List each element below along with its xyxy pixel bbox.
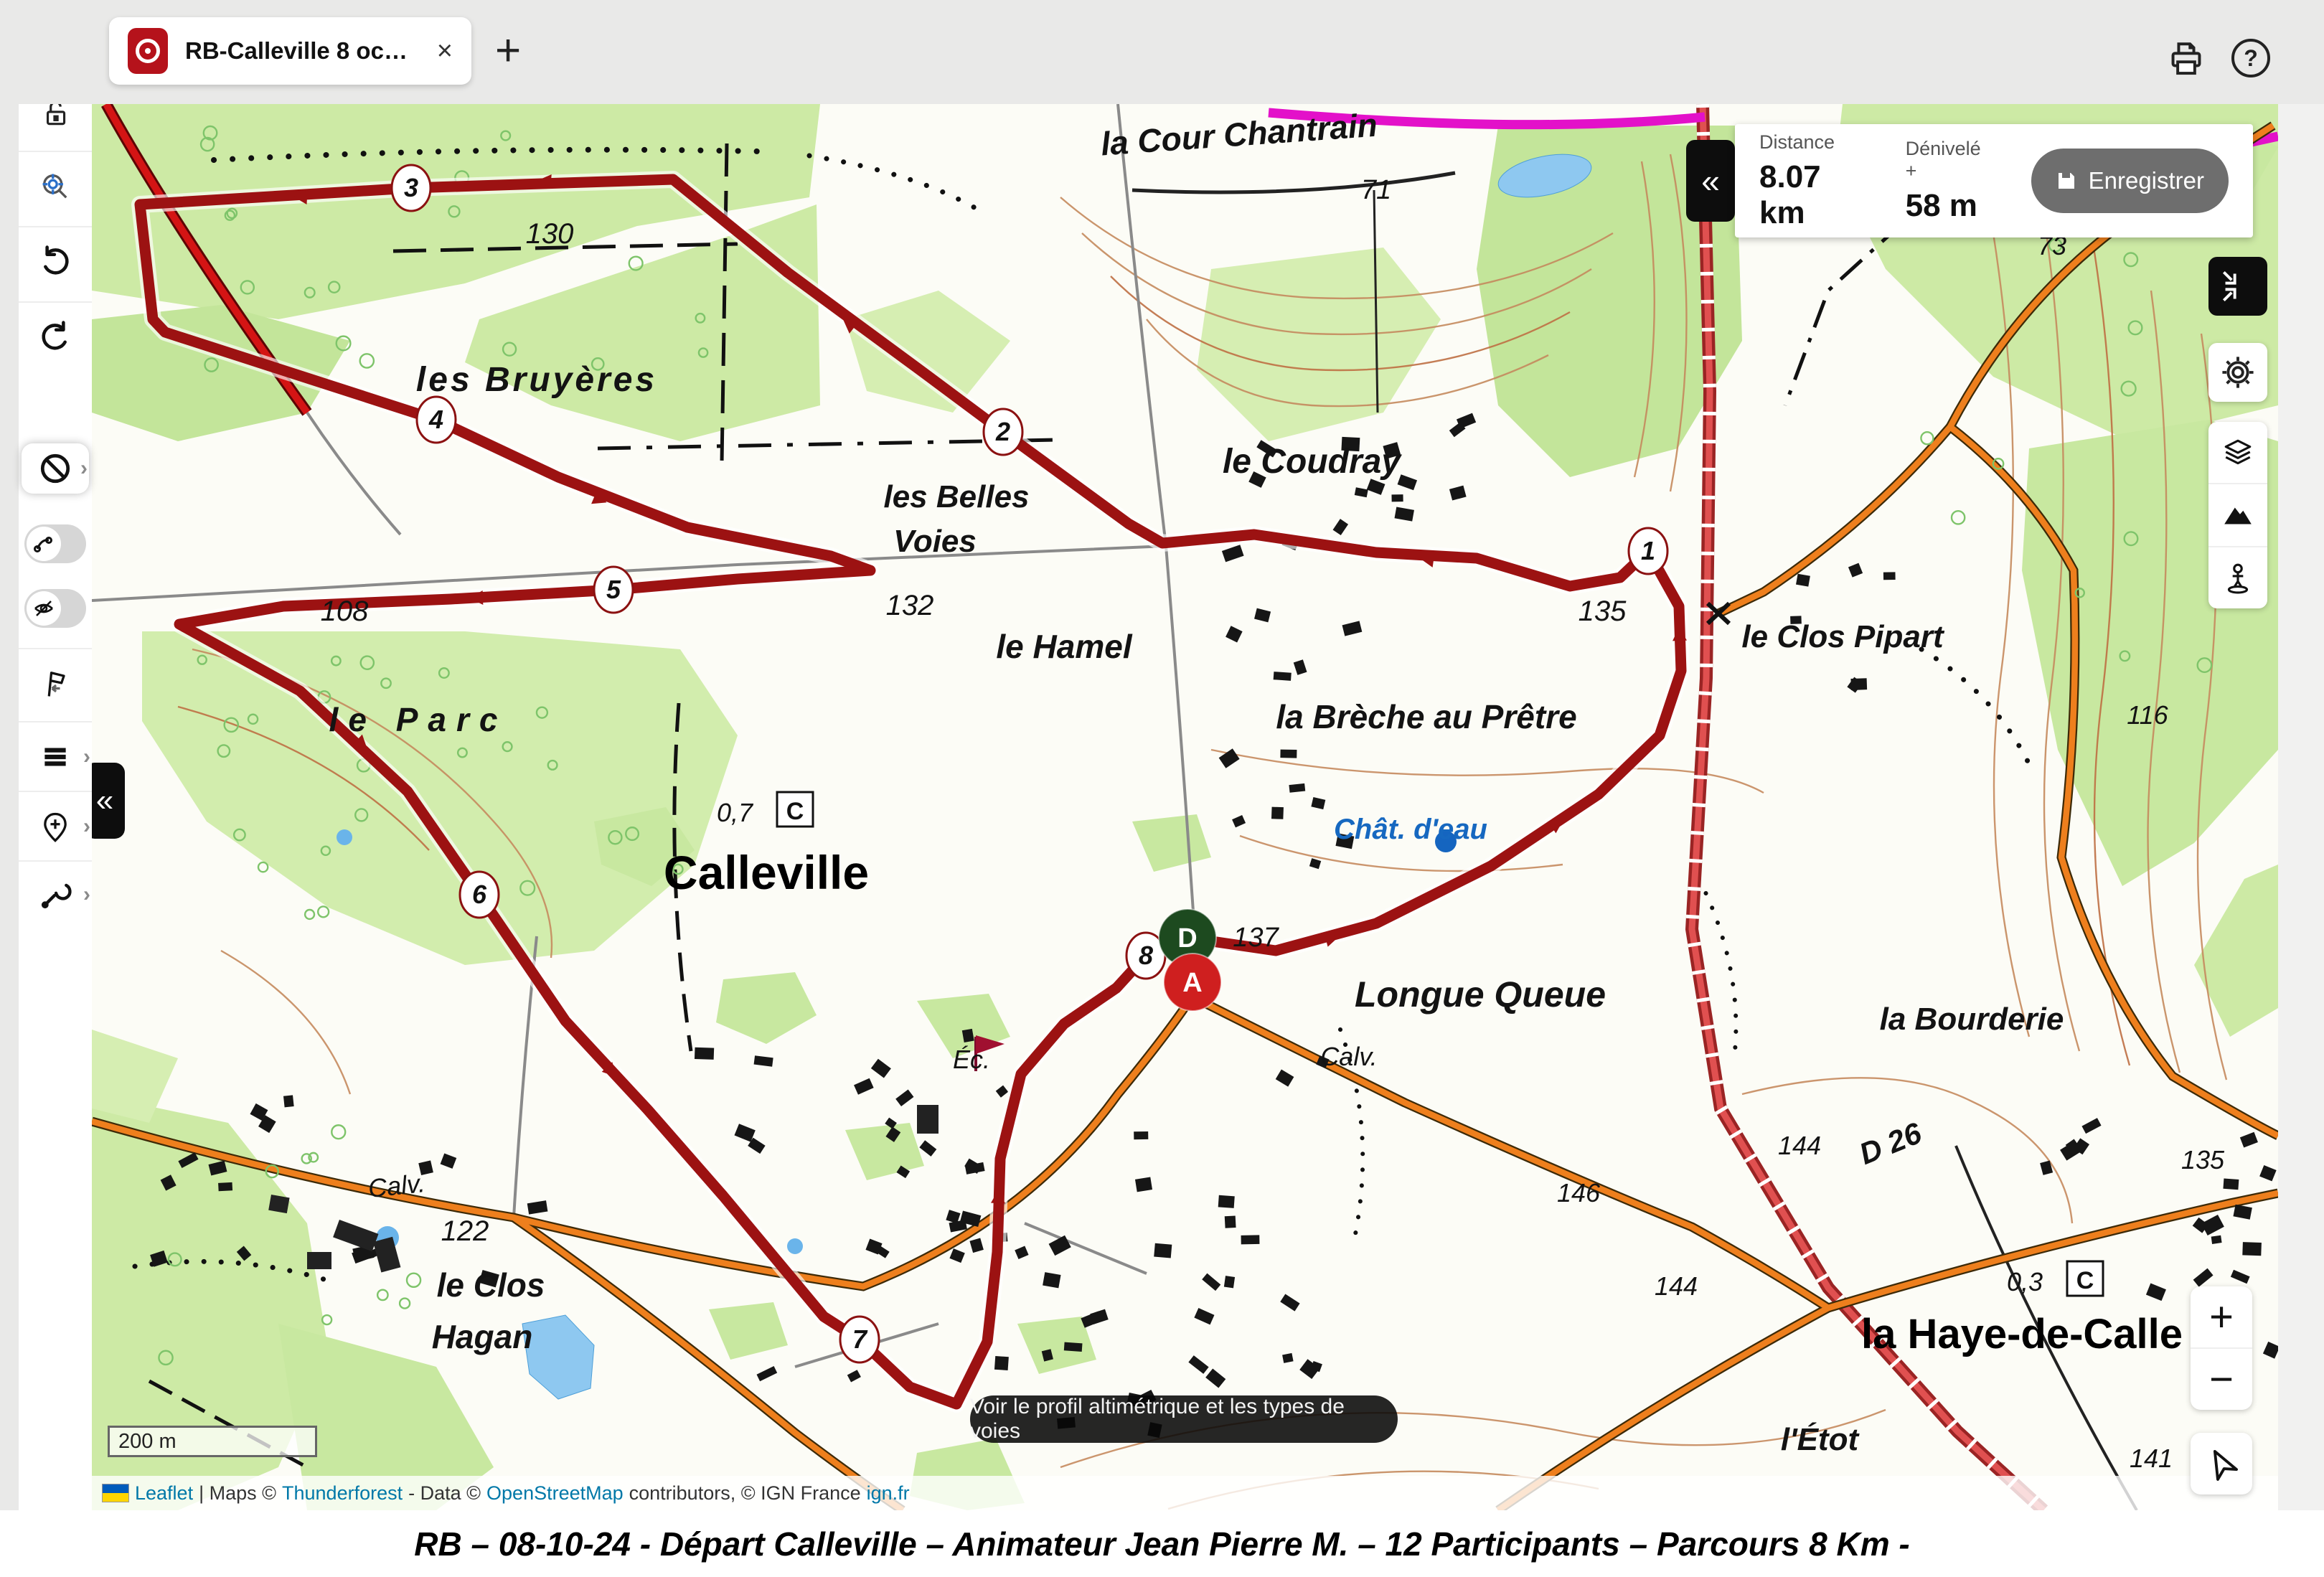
exit-fullscreen-button[interactable] [2208, 257, 2267, 316]
map-tools-stack [2208, 422, 2267, 608]
prohibition-icon [37, 450, 74, 487]
wrench-icon [38, 877, 72, 912]
leaflet-link[interactable]: Leaflet [135, 1482, 193, 1505]
map-label: 132 [886, 590, 934, 621]
ign-link[interactable]: ign.fr [867, 1482, 910, 1505]
map-label: 71 [1361, 175, 1391, 205]
chevron-right-icon: › [83, 745, 90, 769]
map-canvas[interactable]: la Cour Chantrain71130les Bruyèresle Cou… [92, 104, 2278, 1510]
map-label: le Coudray [1223, 443, 1402, 481]
redo-button[interactable] [19, 312, 92, 362]
app-eye-icon [128, 28, 168, 74]
svg-text:2: 2 [995, 417, 1010, 446]
svg-text:1: 1 [1641, 536, 1655, 565]
map-label: la Bourderie [1880, 1002, 2064, 1037]
map-label: 137 [1233, 923, 1279, 953]
map-label: Éc. [953, 1045, 990, 1074]
chevron-right-icon: › [80, 456, 88, 481]
map-label: Calv. [1320, 1042, 1377, 1071]
map-label: Hagan [432, 1318, 533, 1355]
attribution-text: contributors, © IGN France [629, 1482, 861, 1505]
map-label: 0,3 [2007, 1267, 2043, 1296]
eye-slash-icon [27, 591, 61, 626]
settings-button[interactable] [2208, 343, 2267, 402]
map-label: Voies [893, 524, 977, 559]
map-attribution: Leaflet | Maps © Thunderforest - Data © … [92, 1476, 2278, 1510]
sidebar-separator [19, 226, 92, 227]
layers-icon [2221, 436, 2254, 469]
svg-text:3: 3 [404, 173, 418, 202]
zoom-target-icon [38, 169, 72, 204]
chevron-right-icon: › [83, 882, 90, 907]
help-button[interactable]: ? [2231, 39, 2270, 77]
sidebar-separator [19, 860, 92, 862]
svg-text:A: A [1182, 968, 1202, 998]
new-tab-button[interactable]: + [495, 29, 521, 73]
hamburger-icon [39, 740, 72, 773]
waypoint-marker[interactable]: 4 [417, 397, 456, 443]
waypoint-marker[interactable]: 1 [1629, 528, 1667, 574]
map-label: la Haye-de-Calle [1861, 1311, 2183, 1357]
tab-title: RB-Calleville 8 oc… [185, 37, 408, 65]
printer-icon [2165, 37, 2207, 79]
map-label: le Clos [437, 1266, 545, 1304]
map-label: C [786, 798, 804, 825]
toggle-pill [24, 589, 86, 628]
top-bar: RB-Calleville 8 oc… × + ? [0, 0, 2324, 104]
osm-link[interactable]: OpenStreetMap [486, 1482, 624, 1505]
zoom-in-button[interactable]: + [2191, 1286, 2252, 1349]
route-info-panel: Distance 8.07 km Dénivelé + 58 m Enregis… [1735, 124, 2253, 237]
print-button[interactable] [2165, 37, 2207, 79]
mountain-icon [2221, 499, 2254, 532]
distance-metric: Distance 8.07 km [1759, 131, 1860, 231]
sidebar-separator [19, 791, 92, 792]
relief-button[interactable] [2208, 484, 2267, 547]
map-label: 0,7 [717, 798, 754, 827]
map-label: les Bruyères [416, 361, 657, 399]
sidebar-separator [19, 721, 92, 722]
locate-button[interactable] [2191, 1433, 2252, 1494]
route-icon [27, 527, 61, 561]
map-label: les Belles [883, 479, 1029, 514]
tool-sidebar: › › › › [19, 43, 92, 1510]
zoom-out-button[interactable]: − [2191, 1349, 2252, 1410]
flag-icon [38, 667, 72, 701]
thunderforest-link[interactable]: Thunderforest [282, 1482, 403, 1505]
waypoint-marker[interactable]: 6 [460, 872, 499, 918]
tooltip-text: Voir le profil altimétrique et les types… [970, 1395, 1398, 1444]
attribution-text: | Maps © [199, 1482, 276, 1505]
outing-caption: RB – 08-10-24 - Départ Calleville – Anim… [0, 1510, 2324, 1577]
map-label: Longue Queue [1355, 974, 1606, 1015]
save-button[interactable]: Enregistrer [2031, 149, 2229, 213]
map-label: le Clos Pipart [1741, 619, 1945, 654]
sidebar-separator [19, 648, 92, 649]
no-edit-tool-button[interactable]: › [22, 443, 89, 494]
waypoint-marker[interactable]: 3 [392, 165, 431, 211]
add-marker-button[interactable]: › [19, 801, 92, 852]
map-label: 144 [1655, 1271, 1698, 1301]
sidebar-separator [19, 301, 92, 303]
elevation-metric: Dénivelé + 58 m [1906, 138, 1985, 224]
map-label: la Brèche au Prêtre [1276, 698, 1576, 735]
ukraine-flag-icon [102, 1484, 129, 1502]
map-label: 144 [1778, 1131, 1821, 1160]
finish-marker[interactable]: A [1164, 954, 1221, 1011]
panel-collapse-button[interactable]: « [1686, 140, 1735, 222]
sidebar-separator [19, 151, 92, 152]
map-label: le Parc [329, 701, 508, 738]
map-label: D 26 [1855, 1116, 1927, 1171]
distance-value: 8.07 km [1759, 159, 1860, 231]
map-label: 135 [1579, 596, 1627, 627]
document-tab[interactable]: RB-Calleville 8 oc… × [109, 17, 471, 85]
undo-button[interactable] [19, 237, 92, 287]
chevron-right-icon: › [83, 814, 90, 839]
waypoint-marker[interactable]: 5 [594, 567, 633, 613]
map-label: Calleville [664, 846, 869, 899]
waypoint-flag-button[interactable] [19, 659, 92, 709]
hide-layers-toggle[interactable] [19, 583, 92, 634]
scale-bar: 200 m [108, 1426, 317, 1457]
chevrons-left-icon: « [96, 783, 113, 819]
right-gutter [2278, 0, 2324, 1510]
close-tab-icon[interactable]: × [437, 37, 453, 65]
svg-text:4: 4 [428, 405, 443, 434]
map-label: 108 [321, 596, 369, 627]
map-label: 116 [2127, 700, 2168, 730]
map-label: 141 [2130, 1444, 2173, 1473]
map-label: C [2076, 1267, 2094, 1294]
map-label: la Cour Chantrain [1100, 106, 1379, 163]
waypoint-marker[interactable]: 7 [840, 1317, 879, 1362]
menu-button[interactable]: › [19, 732, 92, 782]
map-label: l'Étot [1781, 1421, 1860, 1457]
layers-button[interactable] [2208, 422, 2267, 484]
undo-icon [37, 244, 73, 280]
map-label: le Hamel [996, 628, 1132, 665]
profile-tooltip: Voir le profil altimétrique et les types… [970, 1395, 1398, 1443]
pin-plus-icon [38, 809, 72, 844]
map-label: Chât. d'eau [1334, 814, 1487, 845]
route-mode-toggle[interactable] [19, 519, 92, 569]
attribution-text: - Data © [408, 1482, 481, 1505]
save-icon [2056, 170, 2077, 192]
pegman-icon [2221, 561, 2254, 594]
map-label: 130 [526, 218, 574, 250]
svg-text:8: 8 [1139, 941, 1153, 970]
tools-button[interactable]: › [19, 870, 92, 920]
gear-icon [2220, 354, 2256, 390]
map-container: la Cour Chantrain71130les Bruyèresle Cou… [92, 104, 2278, 1510]
streetview-button[interactable] [2208, 547, 2267, 608]
map-label: 146 [1557, 1178, 1601, 1208]
save-label: Enregistrer [2089, 167, 2204, 194]
sidebar-collapse-button[interactable]: « [92, 763, 125, 839]
elevation-label: Dénivelé + [1906, 138, 1985, 182]
map-label: 122 [441, 1215, 489, 1247]
svg-text:5: 5 [606, 575, 621, 604]
svg-text:D: D [1177, 923, 1197, 954]
elevation-value: 58 m [1906, 188, 1985, 224]
chevrons-left-icon: « [1701, 161, 1720, 200]
zoom-selection-button[interactable] [19, 161, 92, 212]
redo-icon [37, 319, 73, 355]
scale-label: 200 m [118, 1430, 177, 1454]
distance-label: Distance [1759, 131, 1860, 154]
toggle-pill [24, 524, 86, 563]
svg-text:7: 7 [852, 1324, 868, 1354]
compress-icon [2221, 269, 2255, 303]
svg-text:6: 6 [472, 880, 487, 909]
map-label: 135 [2181, 1145, 2225, 1174]
help-label: ? [2244, 45, 2258, 72]
navigation-arrow-icon [2203, 1446, 2239, 1482]
zoom-controls: + − [2191, 1286, 2252, 1410]
waypoint-marker[interactable]: 2 [984, 409, 1022, 455]
map-label: Calv. [367, 1168, 426, 1203]
